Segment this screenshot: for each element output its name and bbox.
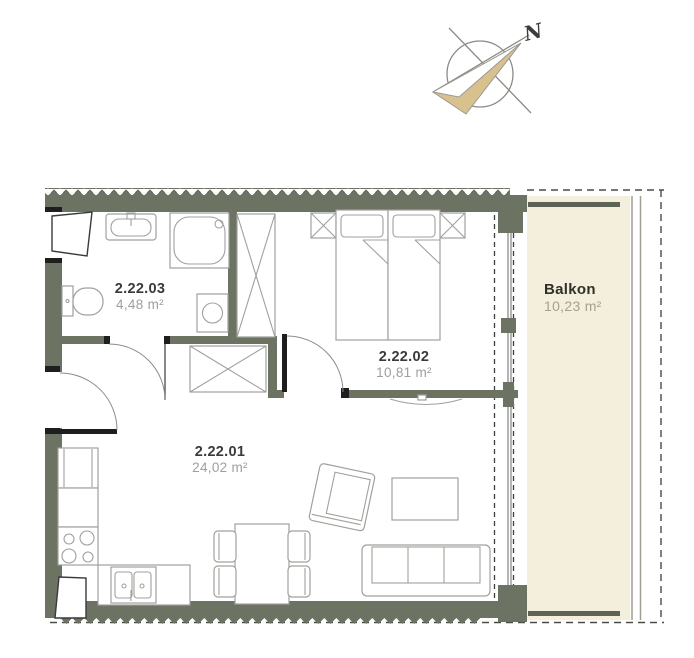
nightstand-left	[311, 213, 336, 238]
floorplan: N 2.22.03 4,48 m² 2.22.02 10,81 m² 2.22.…	[0, 0, 694, 658]
room-number: 2.22.03	[115, 282, 165, 297]
window-leaf	[52, 212, 92, 256]
chair	[288, 566, 310, 597]
chair	[214, 566, 236, 597]
room-area: 10,23 m²	[544, 298, 602, 314]
balcony	[527, 190, 664, 622]
wall-hall-foot	[268, 390, 284, 398]
compass	[433, 28, 531, 114]
door-jamb	[341, 388, 349, 398]
wall-bottom-right-block	[498, 585, 527, 622]
kitchen-window	[55, 577, 86, 618]
door-leaf	[282, 334, 287, 392]
bedroom-door	[282, 334, 349, 398]
room-number: 2.22.01	[192, 445, 248, 460]
dining-table	[235, 524, 289, 604]
hall-closet	[190, 346, 266, 392]
shower	[170, 213, 229, 268]
door-jamb-bottom	[45, 428, 60, 434]
sofa	[362, 545, 490, 596]
wardrobe	[237, 214, 275, 337]
room-label-living: 2.22.01 24,02 m²	[192, 445, 248, 475]
door-jamb-top	[45, 366, 60, 372]
toilet	[62, 286, 103, 316]
floorplan-drawing	[0, 0, 694, 658]
insulation-top	[45, 188, 510, 195]
fridge	[58, 448, 98, 488]
door-swing-arc	[109, 344, 165, 400]
window-jamb-bottom	[45, 258, 62, 263]
room-label-bedroom: 2.22.02 10,81 m²	[376, 350, 432, 380]
door-opening	[45, 372, 62, 428]
glass-facade	[495, 215, 514, 610]
window-leaf	[55, 577, 86, 618]
balcony-railing-top	[528, 202, 620, 207]
armchair	[309, 463, 376, 531]
bathroom-window	[45, 207, 92, 263]
stove	[58, 527, 98, 565]
entrance-door	[45, 366, 117, 434]
door-jamb-left	[104, 336, 110, 344]
door-leaf	[58, 429, 117, 434]
wall-bathroom-bottom-left	[62, 336, 108, 344]
pier-cross-horizontal	[495, 390, 518, 398]
room-area: 10,81 m²	[376, 365, 432, 380]
sink	[106, 213, 156, 240]
kitchen-sink	[111, 567, 156, 603]
coffee-table	[392, 478, 458, 520]
room-area: 4,48 m²	[115, 297, 165, 312]
balcony-floor	[527, 196, 630, 620]
chair	[214, 531, 236, 562]
door-swing-arc	[287, 336, 343, 392]
insulation-bottom	[60, 618, 480, 624]
bed-left	[336, 210, 388, 340]
living-furniture	[214, 463, 490, 604]
window-jamb-top	[45, 207, 62, 212]
door-jamb-right	[164, 336, 170, 344]
wall-hall-vertical	[268, 344, 277, 392]
room-label-bathroom: 2.22.03 4,48 m²	[115, 282, 165, 312]
pier-top	[498, 212, 523, 233]
pier-middle	[501, 318, 516, 333]
bed-right	[388, 210, 440, 340]
room-number: 2.22.02	[376, 350, 432, 365]
kitchen-counter-side	[58, 488, 98, 527]
chair	[288, 531, 310, 562]
nightstand-right	[440, 213, 465, 238]
washing-machine	[197, 294, 228, 332]
bathroom-door	[104, 336, 170, 400]
door-swing-arc	[60, 373, 117, 430]
wall-top	[45, 195, 527, 212]
room-name: Balkon	[544, 282, 602, 298]
room-label-balcony: Balkon 10,23 m²	[544, 282, 602, 314]
room-area: 24,02 m²	[192, 460, 248, 475]
balcony-railing-bottom	[528, 611, 620, 616]
